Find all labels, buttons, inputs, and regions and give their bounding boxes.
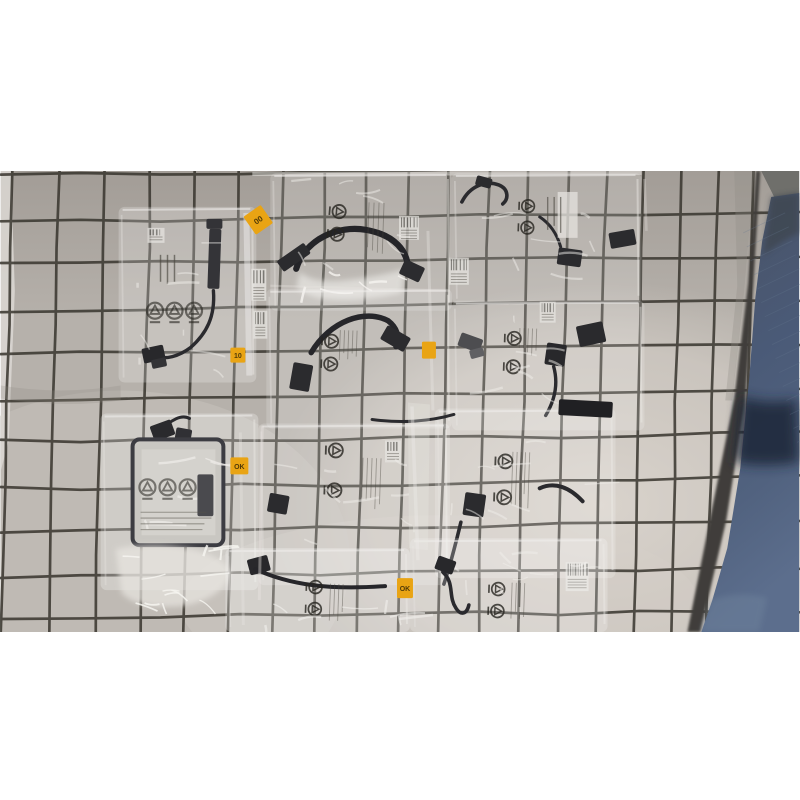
svg-text:OK: OK [234,464,244,471]
svg-text:OK: OK [400,586,410,593]
svg-text:10: 10 [234,353,242,360]
